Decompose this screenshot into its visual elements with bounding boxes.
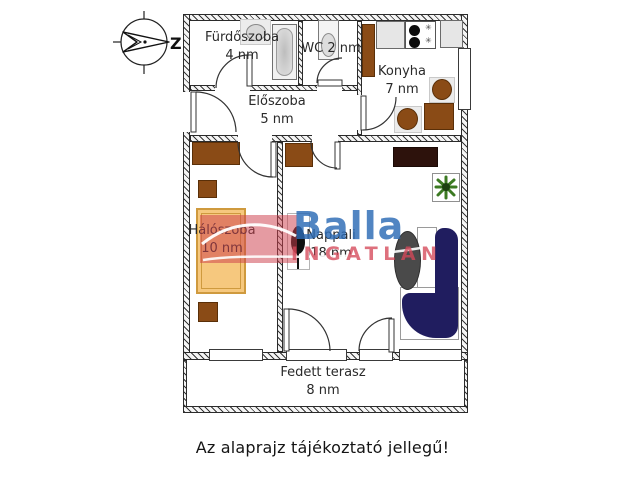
bathroom-door-opening [215, 85, 250, 91]
hall-name: Előszoba [227, 93, 327, 111]
bedroom-door-opening [238, 135, 272, 142]
burner-control-icon: ✳ [425, 23, 432, 32]
bedroom-name: Hálószoba [172, 222, 272, 240]
room-label-bathroom: Fürdőszoba 4 nm [192, 29, 292, 65]
terrace-door2-glass [359, 349, 393, 361]
kitchen-name: Konyha [352, 63, 452, 81]
living-window [399, 349, 462, 361]
kitchen-counter-left [376, 21, 405, 49]
kitchen-area: 7 nm [352, 81, 452, 99]
tv-cabinet [393, 147, 438, 167]
terrace-name: Fedett terasz [273, 364, 373, 382]
kitchen-door-opening [357, 95, 362, 130]
room-label-wc: WC 2 nm [296, 40, 366, 58]
room-label-hall: Előszoba 5 nm [227, 93, 327, 129]
entrance-opening [183, 92, 190, 132]
burner-icon [409, 37, 420, 48]
room-label-bedroom: Hálószoba 10 nm [172, 222, 272, 258]
terrace-door1-glass [286, 349, 347, 361]
plant-icon [433, 174, 459, 201]
wc-door-arc [317, 58, 342, 83]
nightstand [198, 180, 217, 198]
bathroom-area: 4 nm [192, 47, 292, 65]
living-name: Nappali [281, 227, 381, 245]
burner-control-icon: ✳ [425, 36, 432, 45]
stove: ✳ ✳ [405, 21, 436, 49]
hall-area: 5 nm [227, 111, 327, 129]
kitchen-door-arc [363, 97, 396, 130]
kitchen-chair [397, 108, 418, 130]
living-cabinet [285, 143, 313, 167]
wc-label: WC 2 nm [296, 40, 366, 58]
terrace-door1-arc [288, 309, 330, 351]
compass-direction-label: Z [170, 34, 182, 53]
living-door-opening [312, 135, 338, 142]
bedroom-door-leaf [271, 142, 276, 177]
room-label-living: Nappali 18 nm [281, 227, 381, 263]
compass-icon: Z [112, 10, 188, 76]
terrace-door1-leaf [284, 309, 289, 351]
kitchen-counter-right [440, 20, 463, 48]
terrace-door2-leaf [389, 319, 394, 352]
room-label-terrace: Fedett terasz 8 nm [273, 364, 373, 400]
terrace-door2-arc [359, 318, 392, 351]
bedroom-window [209, 349, 263, 361]
entrance-door-leaf [191, 92, 196, 132]
bedroom-area: 10 nm [172, 240, 272, 258]
plant-box [432, 173, 460, 202]
disclaimer-caption: Az alaprajz tájékoztató jellegű! [150, 438, 495, 457]
kitchen-table [424, 103, 454, 130]
floor-plan-canvas: ✳ ✳ [0, 0, 640, 480]
bedroom-wardrobe [192, 142, 240, 165]
wall-terrace-bottom [183, 406, 468, 413]
living-area: 18 nm [281, 245, 381, 263]
nightstand [198, 302, 218, 322]
room-label-kitchen: Konyha 7 nm [352, 63, 452, 99]
coffee-table [394, 231, 421, 290]
bathroom-name: Fürdőszoba [192, 29, 292, 47]
wc-door-opening [317, 85, 342, 91]
kitchen-window [458, 48, 471, 110]
terrace-area: 8 nm [273, 382, 373, 400]
burner-icon [409, 25, 420, 36]
bedroom-door-arc [238, 142, 273, 177]
living-door-leaf [335, 142, 340, 169]
living-door-arc [311, 142, 337, 168]
